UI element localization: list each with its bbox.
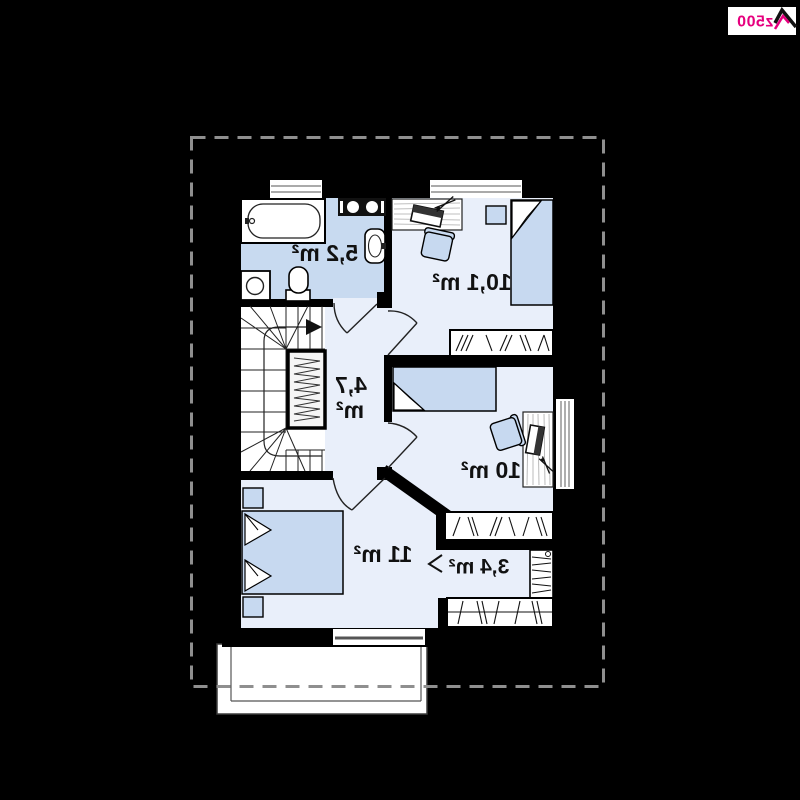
toilet [286, 267, 310, 301]
bathroom-area-label: 5,2 m² [291, 240, 358, 266]
z500-logo: z500 [727, 6, 797, 36]
wall-sink [365, 229, 386, 263]
bed [511, 200, 553, 305]
window-right [556, 399, 574, 489]
desk [392, 196, 462, 230]
logo-brand-text: z500 [737, 14, 774, 31]
bedroom3-area-label: 11 m² [353, 541, 412, 567]
bed [393, 367, 496, 411]
nightstand [243, 597, 263, 617]
desk [523, 412, 553, 487]
window-top-right [430, 180, 522, 198]
bedroom2-area-label: 10 m² [461, 457, 521, 483]
nightstand [486, 206, 506, 224]
shelf-unit [530, 550, 553, 598]
nightstand [243, 488, 263, 508]
wardrobe [447, 598, 553, 627]
bedroom1-area-label: 10,1 m² [432, 269, 512, 295]
floor-plan-page: 5,2 m² 10,1 m² 4,7 m² 10 m² 11 m² 3,4 m²… [0, 0, 800, 800]
bathtub [241, 199, 325, 243]
wardrobe [450, 330, 553, 356]
washing-machine [241, 271, 270, 300]
bedroom1-doorway [384, 308, 392, 355]
bedroom2-doorway [384, 422, 392, 468]
balcony-door [333, 629, 425, 645]
wardrobe [445, 512, 553, 540]
balcony [217, 644, 427, 714]
double-bed [242, 511, 343, 594]
hallway-area-label-line1: 4,7 [335, 372, 367, 398]
chair [420, 227, 455, 262]
double-washbasin [338, 198, 386, 216]
bathroom-doorway [333, 298, 377, 307]
window-top-left [270, 180, 322, 198]
hallway-area-label-line2: m² [336, 397, 364, 423]
floor-plan-drawing: 5,2 m² 10,1 m² 4,7 m² 10 m² 11 m² 3,4 m²… [0, 0, 800, 800]
closet-area-label: 3,4 m² [449, 555, 510, 578]
stair-railing [288, 351, 325, 428]
